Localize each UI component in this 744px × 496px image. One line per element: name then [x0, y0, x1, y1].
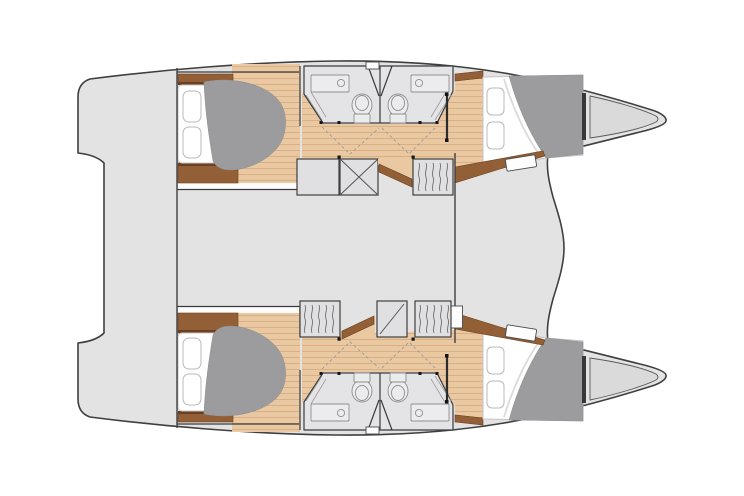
upper-module-row [297, 156, 453, 196]
corner-dot [338, 156, 341, 159]
corner-dot [412, 156, 415, 159]
catamaran-deck-plan [0, 0, 744, 496]
corner-dot [338, 338, 341, 341]
floor-plan-canvas [0, 0, 744, 496]
companionway-steps [300, 301, 340, 337]
corner-dot [412, 338, 415, 341]
storage-locker [297, 159, 339, 195]
